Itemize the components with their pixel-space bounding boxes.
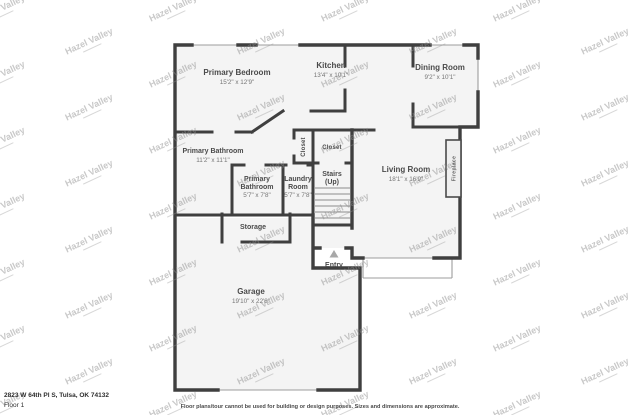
primary-bedroom-dims: 15'2" x 12'9": [220, 79, 255, 86]
laundry-room-dims: 5'7" x 7'8": [284, 192, 312, 199]
property-address: 2823 W 64th Pl S, Tulsa, OK 74132: [4, 391, 109, 401]
laundry-room-label-line1: Laundry: [284, 176, 312, 183]
dining-room-dims: 9'2" x 10'1": [424, 74, 455, 81]
laundry-room-label-line2: Room: [288, 184, 308, 191]
entry-label: Entry: [325, 262, 343, 269]
garage-label: Garage: [237, 287, 265, 296]
primary-bedroom-label: Primary Bedroom: [203, 68, 270, 77]
living-room-dims: 18'1" x 16'9": [389, 176, 424, 183]
entry-arrow-icon: [330, 250, 339, 258]
kitchen-dims: 13'4" x 10'1": [314, 72, 349, 79]
primary-bathroom-label: Primary Bathroom: [182, 148, 243, 155]
floorplan-drawing: Fireplace Primary Bedroom 15'2" x 12'9" …: [0, 0, 640, 415]
storage-label: Storage: [240, 224, 266, 231]
stairs-label: Stairs: [322, 171, 342, 178]
closet-right-label: Closet: [322, 145, 342, 151]
stairs-sublabel: (Up): [325, 179, 339, 186]
kitchen-label: Kitchen: [316, 61, 345, 70]
floorplan-page: Fireplace Primary Bedroom 15'2" x 12'9" …: [0, 0, 640, 415]
primary-bathroom2-label-line1: Primary: [244, 176, 270, 183]
fireplace: Fireplace: [446, 140, 461, 197]
primary-bathroom2-dims: 5'7" x 7'8": [243, 192, 271, 199]
fireplace-label: Fireplace: [452, 156, 458, 182]
living-room-label: Living Room: [382, 165, 430, 174]
garage-dims: 19'10" x 22'8": [232, 298, 270, 305]
disclaimer-text: Floor plans/tour cannot be used for buil…: [0, 404, 640, 410]
primary-bathroom-dims: 11'2" x 11'1": [196, 157, 230, 164]
dining-room-label: Dining Room: [415, 63, 465, 72]
primary-bathroom2-label-line2: Bathroom: [240, 184, 273, 191]
closet-left-label: Closet: [301, 137, 307, 157]
